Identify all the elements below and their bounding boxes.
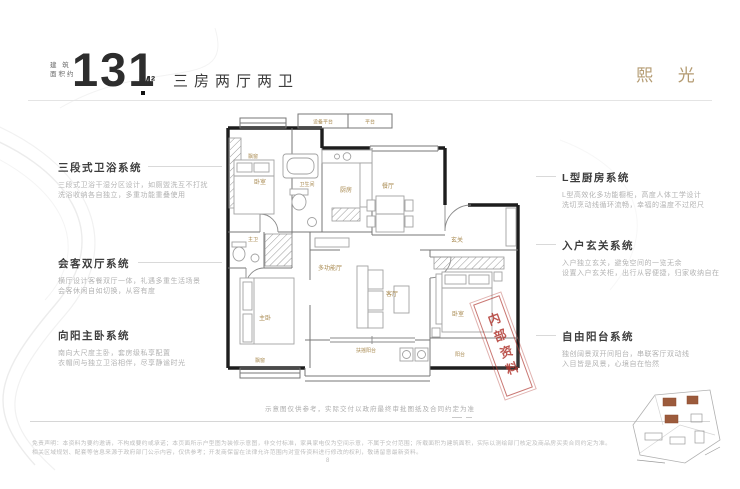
annotation-desc: 独创阔景双开间阳台，串联客厅双动线 — [562, 350, 720, 360]
room-label-kitchen: 厨房 — [340, 186, 352, 194]
annotation-desc: 会客休闲自如切换，从容有度 — [58, 287, 216, 297]
annotation-desc: 衣帽间与独立卫浴相伴，尽享静谧时光 — [58, 359, 216, 369]
room-label-balcony-side: 阳台 — [455, 351, 465, 358]
annotation-title: L型厨房系统 — [562, 170, 720, 185]
annotation-desc: 洗浴收纳各自独立，多重功能重叠使用 — [58, 191, 216, 201]
annotation-title: 三段式卫浴系统 — [58, 160, 216, 175]
annotation-foyer-system: 入户玄关系统 入户独立玄关，避免空间的一览无余 设置入户玄关柜，出行从容便捷，归… — [562, 238, 720, 279]
annotation-balcony-system: 自由阳台系统 独创阔景双开间阳台，串联客厅双动线 入目皆是风景，心境自在怡然 — [562, 329, 720, 370]
annotation-title: 自由阳台系统 — [562, 329, 720, 344]
leader-line — [148, 166, 222, 167]
disclaimer-line1: 免责声明：本资料为要约邀请，不构成要约或承诺；本页面所示户型图为装修示意图，非交… — [32, 440, 708, 448]
leader-line — [138, 262, 222, 263]
annotation-desc: 南向大尺度主卧，套房级私享配置 — [58, 349, 216, 359]
leader-line — [536, 244, 556, 245]
area-value: 131 — [72, 42, 156, 97]
floor-plan: 飘窗 卧室 卫生间 厨房 设备平台 平台 餐厅 玄关 客厅 多功能厅 主卧 主卫… — [220, 110, 520, 390]
annotation-desc: 入户独立玄关，避免空间的一览无余 — [562, 259, 720, 269]
room-label-master-bath: 主卫 — [248, 236, 258, 243]
annotation-desc: 三段式卫浴干湿分区设计，如厕盥洗互不打扰 — [58, 181, 216, 191]
room-label-multi: 多功能厅 — [318, 264, 342, 272]
room-label-entry: 玄关 — [451, 236, 463, 244]
page-mark: 8 — [326, 458, 331, 464]
area-unit: M² — [140, 73, 155, 88]
room-label-dining: 餐厅 — [382, 182, 394, 190]
annotation-desc: 设置入户玄关柜，出行从容便捷，归家收纳自在 — [562, 269, 720, 279]
disclaimer-line2: 相关区域规划、配套等信息来源于政府部门公示内容，仅供参考；开发商保留在法律允许范… — [32, 449, 452, 457]
leader-line — [536, 335, 556, 336]
annotation-desc: 入目皆是风景，心境自在怡然 — [562, 360, 720, 370]
footer-rule-tick — [452, 417, 462, 418]
room-label-platform2: 平台 — [365, 119, 375, 126]
product-name: 熙 光 — [636, 61, 705, 86]
room-label-bay1: 飘窗 — [248, 153, 258, 160]
annotation-kitchen-system: L型厨房系统 L型高效化多功能橱柜，高度人体工学设计 洗切烹动线循环流畅，幸福的… — [562, 170, 720, 211]
annotation-desc: 洗切烹动线循环流畅，幸福的温度不过咫尺 — [562, 201, 720, 211]
footer-rule — [30, 421, 710, 422]
annotation-title: 会客双厅系统 — [58, 256, 216, 271]
footer-rule-tick — [466, 417, 472, 418]
room-label-balcony-main: 扶摇阳台 — [356, 347, 376, 354]
room-label-master: 主卧 — [259, 314, 271, 322]
annotation-master-system: 向阳主卧系统 南向大尺度主卧，套房级私享配置 衣帽间与独立卫浴相伴，尽享静谧时光 — [58, 328, 216, 369]
leader-line — [536, 176, 556, 177]
room-label-bath: 卫生间 — [299, 181, 314, 188]
annotation-title: 向阳主卧系统 — [58, 328, 216, 343]
room-label-bedroom2: 卧室 — [452, 310, 464, 318]
layout-description: 三房两厅两卫 — [173, 70, 299, 91]
annotation-desc: L型高效化多功能橱柜，高度人体工学设计 — [562, 191, 720, 201]
annotation-title: 入户玄关系统 — [562, 238, 720, 253]
header-divider — [28, 100, 712, 101]
room-label-living: 客厅 — [386, 290, 398, 298]
brochure-page: 建 筑 面积约 131 M² 三房两厅两卫 熙 光 三段式卫浴系统 三段式卫浴干… — [0, 0, 740, 489]
room-label-platform1: 设备平台 — [313, 119, 333, 126]
room-label-master-bay: 飘窗 — [255, 357, 265, 364]
site-buildings — [637, 414, 720, 463]
annotation-desc: 横厅设计客餐双厅一体，礼遇多重生活场景 — [58, 277, 216, 287]
room-label-bedroom1: 卧室 — [254, 178, 266, 186]
site-plan-map — [625, 385, 725, 470]
site-buildings-highlight — [663, 396, 698, 423]
unit-square-ornament — [141, 91, 145, 95]
